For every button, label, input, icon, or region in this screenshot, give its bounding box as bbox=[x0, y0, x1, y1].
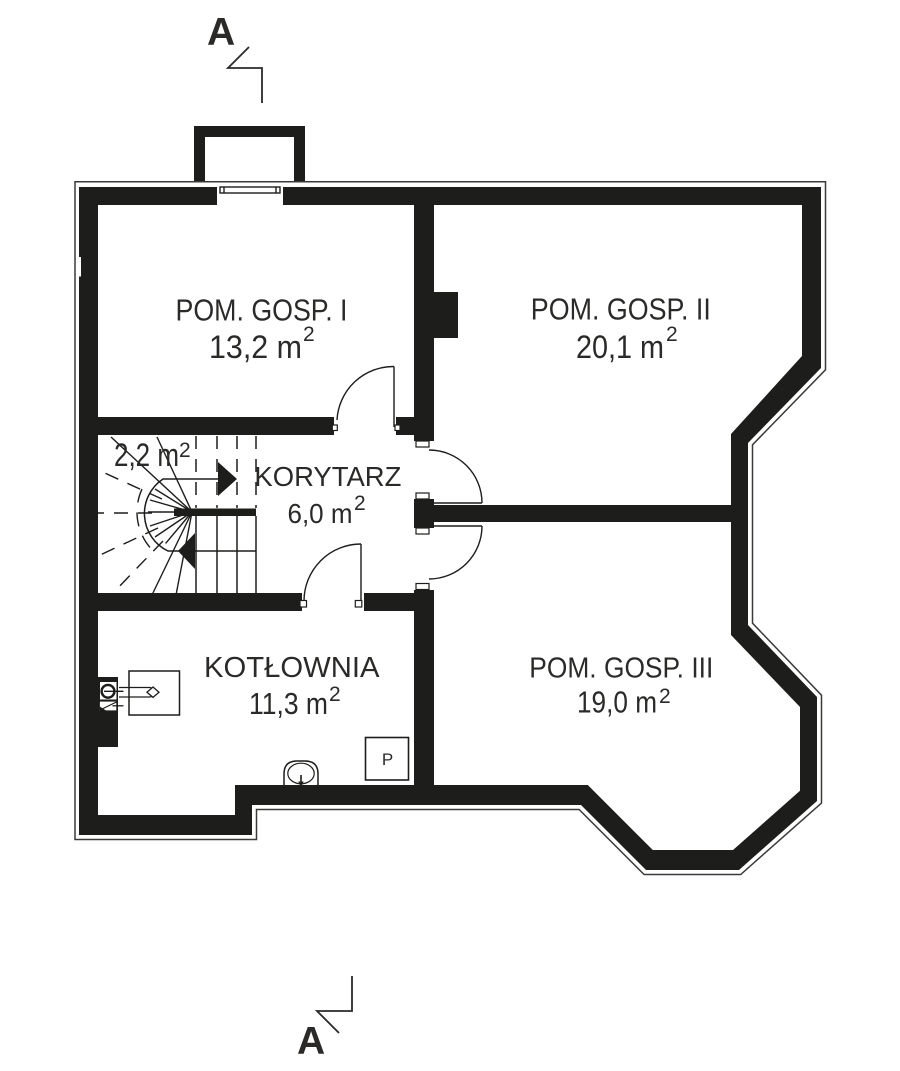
svg-text:2,2 m: 2,2 m bbox=[114, 437, 179, 473]
svg-text:KORYTARZ: KORYTARZ bbox=[254, 461, 401, 492]
svg-text:20,1 m: 20,1 m bbox=[576, 329, 664, 365]
svg-text:2: 2 bbox=[179, 439, 191, 462]
svg-text:2: 2 bbox=[303, 323, 315, 346]
svg-text:2: 2 bbox=[659, 685, 671, 708]
svg-text:6,0 m: 6,0 m bbox=[288, 498, 353, 529]
svg-text:19,0 m: 19,0 m bbox=[577, 685, 657, 720]
svg-text:2: 2 bbox=[354, 492, 366, 515]
svg-text:POM. GOSP. III: POM. GOSP. III bbox=[529, 653, 713, 685]
svg-text:POM. GOSP. I: POM. GOSP. I bbox=[176, 293, 348, 328]
svg-text:P: P bbox=[382, 750, 393, 769]
svg-text:13,2 m: 13,2 m bbox=[209, 329, 302, 365]
svg-text:KOTŁOWNIA: KOTŁOWNIA bbox=[204, 652, 380, 684]
svg-text:A: A bbox=[297, 1020, 325, 1063]
svg-text:2: 2 bbox=[666, 323, 678, 346]
svg-text:2: 2 bbox=[329, 683, 341, 706]
svg-text:POM. GOSP. II: POM. GOSP. II bbox=[531, 292, 711, 327]
svg-text:11,3 m: 11,3 m bbox=[249, 686, 328, 721]
svg-text:A: A bbox=[207, 11, 235, 54]
